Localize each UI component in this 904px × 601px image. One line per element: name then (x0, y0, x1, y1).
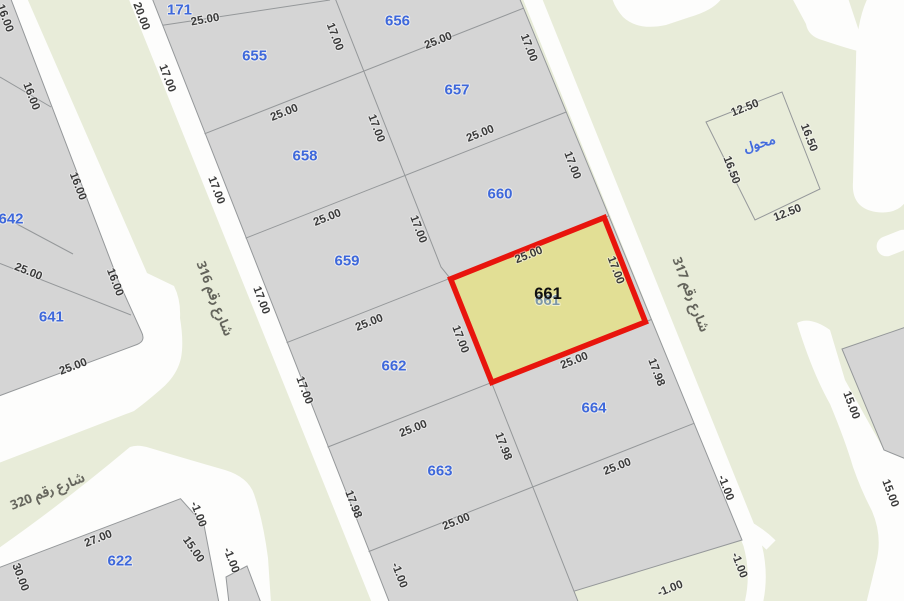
svg-text:657: 657 (444, 81, 469, 98)
svg-text:662: 662 (381, 357, 406, 374)
svg-text:656: 656 (385, 12, 410, 29)
svg-text:659: 659 (334, 252, 359, 269)
svg-text:663: 663 (427, 462, 452, 479)
svg-text:661: 661 (534, 285, 562, 303)
svg-text:660: 660 (487, 185, 512, 202)
svg-text:655: 655 (242, 47, 267, 64)
svg-text:171: 171 (167, 1, 192, 18)
svg-text:622: 622 (107, 552, 132, 569)
svg-text:641: 641 (39, 308, 64, 325)
svg-text:658: 658 (292, 147, 317, 164)
svg-text:642: 642 (0, 210, 24, 227)
svg-text:664: 664 (581, 399, 607, 416)
